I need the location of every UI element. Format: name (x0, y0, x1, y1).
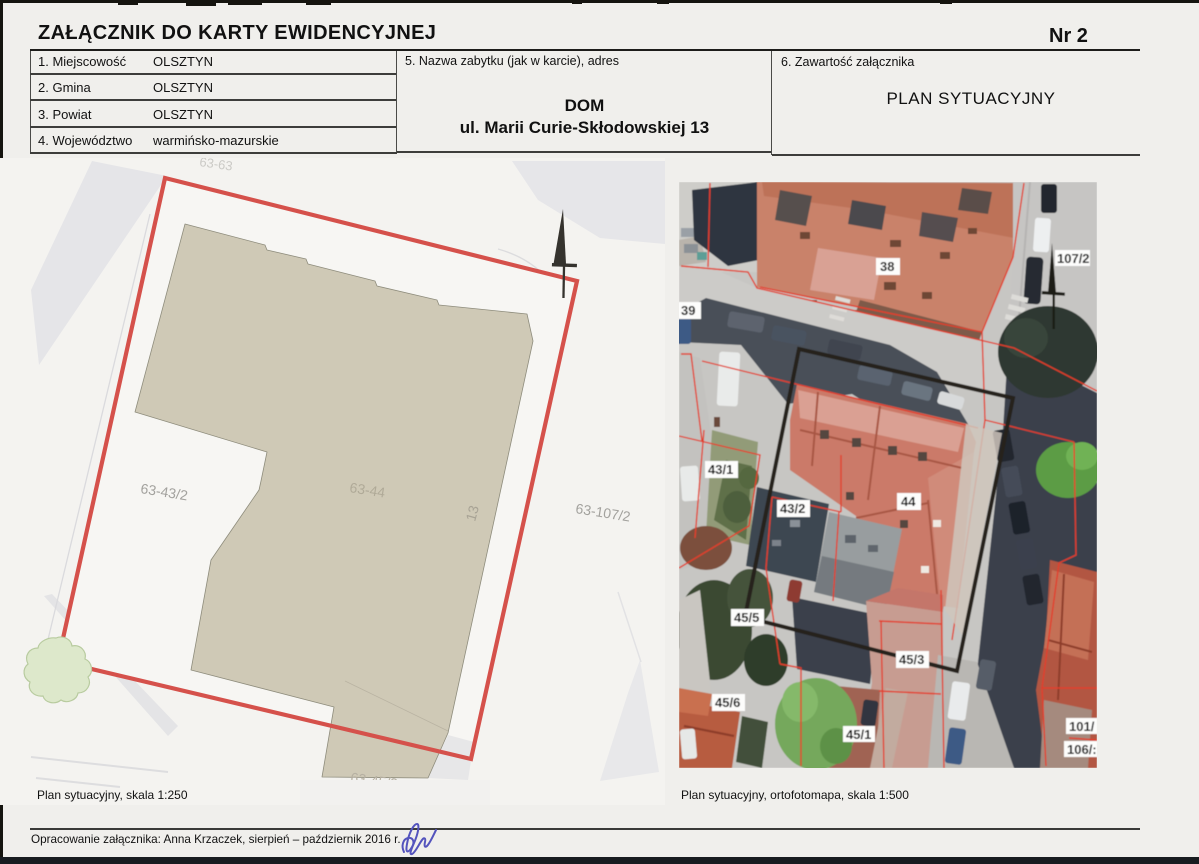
svg-text:45/3: 45/3 (899, 652, 924, 667)
svg-text:43/1: 43/1 (708, 462, 733, 477)
svg-text:39: 39 (681, 303, 695, 318)
svg-text:45/1: 45/1 (846, 727, 871, 742)
svg-text:45/6: 45/6 (715, 695, 740, 710)
svg-text:107/2: 107/2 (1057, 251, 1090, 266)
svg-text:101/: 101/ (1069, 719, 1095, 734)
svg-text:38: 38 (880, 259, 894, 274)
svg-text:45/5: 45/5 (734, 610, 759, 625)
svg-text:106/:: 106/: (1067, 742, 1097, 757)
svg-text:43/2: 43/2 (780, 501, 805, 516)
svg-text:44: 44 (901, 494, 916, 509)
